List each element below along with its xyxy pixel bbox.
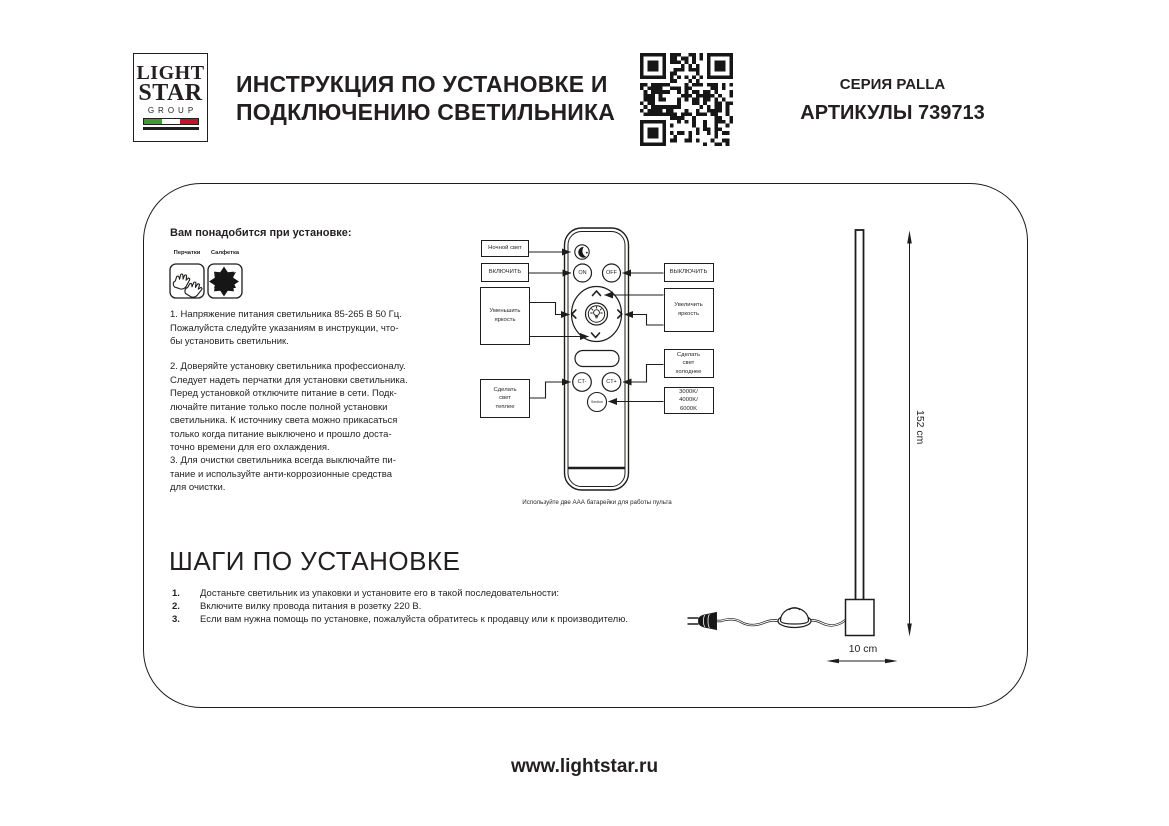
- callout-decrease-brightness: Уменьшить яркость: [480, 287, 530, 345]
- callout-colder-light: Сделать свет холоднее: [664, 349, 714, 378]
- callout-increase-brightness: Увеличить яркость: [664, 288, 714, 332]
- instruction-paragraph-2: 2. Доверяйте установку светильника профе…: [170, 360, 422, 455]
- step-number: 1.: [172, 588, 192, 599]
- callout-color-temperatures: 3000K/ 4000K/ 6000K: [664, 387, 714, 414]
- callout-turn-off: ВЫКЛЮЧИТЬ: [664, 263, 714, 282]
- on-button-label: ON: [570, 270, 595, 276]
- section-button-label: Section: [585, 400, 610, 404]
- step-number: 2.: [172, 601, 192, 612]
- instruction-paragraph-1: 1. Напряжение питания светильника 85-265…: [170, 308, 422, 349]
- lamp-base-label: 10 cm: [844, 643, 882, 655]
- callout-warmer-light: Сделать свет теплее: [480, 379, 530, 418]
- logo-group-text: GROUP: [148, 106, 197, 115]
- title-line-1: ИНСТРУКЦИЯ ПО УСТАНОВКЕ И: [236, 70, 615, 98]
- off-button-label: OFF: [599, 270, 624, 276]
- instruction-sheet: LIGHT STAR GROUP ИНСТРУКЦИЯ ПО УСТАНОВКЕ…: [0, 0, 1169, 826]
- ct-minus-button-label: CT-: [570, 379, 595, 385]
- instruction-paragraph-3: 3. Для очистки светильника всегда выключ…: [170, 454, 422, 495]
- lightstar-logo: LIGHT STAR GROUP: [133, 53, 208, 142]
- step-number: 3.: [172, 614, 192, 625]
- lamp-height-label: 152 cm: [910, 410, 926, 470]
- steps-heading: ШАГИ ПО УСТАНОВКЕ: [169, 546, 460, 577]
- step-text: Достаньте светильник из упаковки и устан…: [200, 588, 840, 599]
- title-line-2: ПОДКЛЮЧЕНИЮ СВЕТИЛЬНИКА: [236, 98, 615, 126]
- napkin-label: Салфетка: [207, 250, 243, 256]
- callout-night-light: Ночной свет: [481, 240, 529, 257]
- battery-caption: Используйте две ААА батарейки для работы…: [480, 499, 714, 506]
- callout-turn-on: ВКЛЮЧИТЬ: [481, 263, 529, 282]
- step-text: Если вам нужна помощь по установке, пожа…: [200, 614, 840, 625]
- qr-code: [640, 53, 733, 146]
- italian-flag-icon: [143, 118, 199, 125]
- logo-underline: [143, 127, 199, 130]
- page-title: ИНСТРУКЦИЯ ПО УСТАНОВКЕ И ПОДКЛЮЧЕНИЮ СВ…: [236, 70, 615, 126]
- logo-text: STAR: [138, 82, 202, 104]
- ct-plus-button-label: CT+: [599, 379, 624, 385]
- step-text: Включите вилку провода питания в розетку…: [200, 601, 840, 612]
- needs-heading: Вам понадобится при установке:: [170, 227, 352, 239]
- article-number: АРТИКУЛЫ 739713: [780, 102, 1005, 125]
- website-url: www.lightstar.ru: [0, 756, 1169, 778]
- series-label: СЕРИЯ PALLA: [780, 76, 1005, 93]
- gloves-label: Перчатки: [169, 250, 205, 256]
